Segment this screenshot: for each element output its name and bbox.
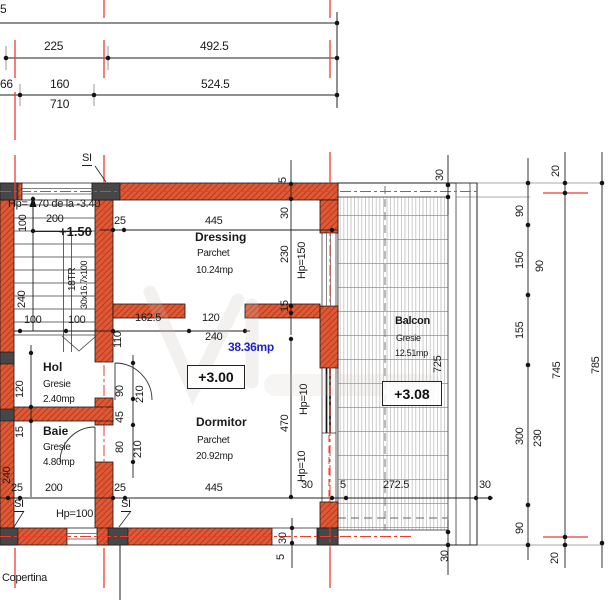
dim-30-balcony-right: 30 [479, 480, 491, 491]
dim-5-dressing: 5 [278, 177, 289, 183]
room-finish-balcon: Gresie [396, 334, 421, 343]
dim-100-stair: 100 [18, 215, 29, 232]
dim-30-wall-end: 30 [278, 532, 289, 544]
room-finish-baie: Gresie [43, 443, 71, 453]
level-balcon: +3.08 [394, 386, 429, 402]
note-copertina: Copertina [2, 573, 47, 584]
dim-25-bottom-a: 25 [11, 483, 23, 494]
dim-230-right: 230 [533, 430, 544, 447]
room-name-hol: Hol [43, 361, 62, 373]
dim-272-5: 272.5 [383, 480, 409, 491]
room-area-baie: 4.80mp [43, 458, 75, 468]
dim-25-dressing: 25 [114, 216, 126, 227]
dim-200-bottom: 200 [45, 483, 62, 494]
dim-162-5: 162.5 [135, 313, 161, 324]
dim-30-balcony-bottom: 30 [440, 550, 451, 562]
level-living: +3.00 [198, 369, 233, 385]
dim-5-south: 5 [340, 480, 346, 491]
dim-120-living: 120 [202, 313, 219, 324]
room-finish-dressing: Parchet [197, 249, 229, 259]
dim-785-total: 785 [591, 357, 602, 374]
dim-30-south: 30 [301, 480, 313, 491]
parapet-dormitor-a: Hp=10 [299, 384, 310, 415]
dim-20-right-bottom: 20 [550, 552, 561, 564]
total-area-label: 38.36mp [228, 341, 274, 353]
dim-25-bottom-b: 25 [114, 483, 126, 494]
dim-230-dressing: 230 [280, 246, 291, 263]
dim-90-right-a: 90 [515, 205, 526, 217]
dim-30-balcony-top: 30 [435, 169, 446, 181]
stair-tread-size: 30x16.7x100 [80, 261, 89, 309]
dim-210-a: 210 [135, 386, 146, 403]
room-name-dressing: Dressing [195, 231, 246, 243]
level-box-balcon: +3.08 [382, 381, 442, 406]
dim-5-wall-end: 5 [276, 554, 287, 560]
dim-20-right-top: 20 [551, 165, 562, 177]
stair-parapet-note: 70 de la -3.40 [37, 199, 100, 210]
dim-15-baie: 15 [15, 426, 26, 438]
dim-100-b: 100 [68, 315, 85, 326]
dim-90-right-c: 90 [515, 522, 526, 534]
room-area-dressing: 10.24mp [196, 266, 233, 276]
dim-90-door: 90 [115, 385, 126, 397]
dim-90-right-b: 90 [535, 260, 546, 272]
dim-110: 110 [113, 331, 124, 348]
dim-445-dressing: 445 [205, 216, 222, 227]
room-finish-dormitor: Parchet [197, 436, 229, 446]
room-name-baie: Baie [43, 425, 68, 437]
dim-300-right: 300 [515, 428, 526, 445]
dim-100-a: 100 [24, 315, 41, 326]
dim-210-b: 210 [133, 441, 144, 458]
si-marker-top: SI [82, 153, 92, 166]
parapet-dormitor-b: Hp=10 [297, 451, 308, 482]
dim-30-dressing: 30 [280, 207, 291, 219]
dim-150-right: 150 [515, 252, 526, 269]
room-area-dormitor: 20.92mp [196, 452, 233, 462]
room-area-balcon: 12.51mp [395, 349, 428, 358]
dim-445-bottom: 445 [205, 483, 222, 494]
dim-160: 160 [50, 78, 69, 90]
room-name-balcon: Balcon [395, 316, 430, 327]
dim-45: 45 [115, 411, 126, 423]
dim-470: 470 [280, 415, 291, 432]
level-stair: +1.50 [59, 225, 92, 238]
si-marker-b: SI [121, 499, 131, 512]
dim-15-dressing: 15 [280, 300, 291, 312]
dim-66: 66 [0, 78, 13, 90]
stair-treads: 18TR [68, 268, 78, 291]
parapet-bottom: Hp=100 [56, 509, 93, 520]
dim-492-5: 492.5 [200, 40, 229, 52]
dim-240-living: 240 [205, 332, 222, 343]
dim-710: 710 [50, 98, 69, 110]
level-box-living: +3.00 [187, 365, 245, 389]
dim-524-5: 524.5 [201, 78, 230, 90]
top-dimension-lines [0, 12, 337, 108]
dim-225: 225 [44, 40, 63, 52]
room-name-dormitor: Dormitor [196, 416, 247, 428]
dim-120-hol: 120 [15, 381, 26, 398]
dim-155-right: 155 [515, 322, 526, 339]
floor-plan: 5 225 492.5 66 160 524.5 710 SI Hp= 70 d… [0, 0, 613, 600]
stair-parapet-prefix: Hp= [8, 199, 28, 210]
dim-80-door: 80 [115, 441, 126, 453]
parapet-dressing: Hp=150 [297, 242, 308, 279]
dim-cut: 5 [0, 3, 6, 15]
room-area-hol: 2.40mp [43, 395, 75, 405]
si-marker-a: SI [14, 499, 24, 512]
dim-745-total: 745 [552, 362, 563, 379]
dim-240-stair: 240 [17, 291, 28, 308]
dim-725: 725 [433, 356, 444, 373]
room-finish-hol: Gresie [43, 380, 71, 390]
